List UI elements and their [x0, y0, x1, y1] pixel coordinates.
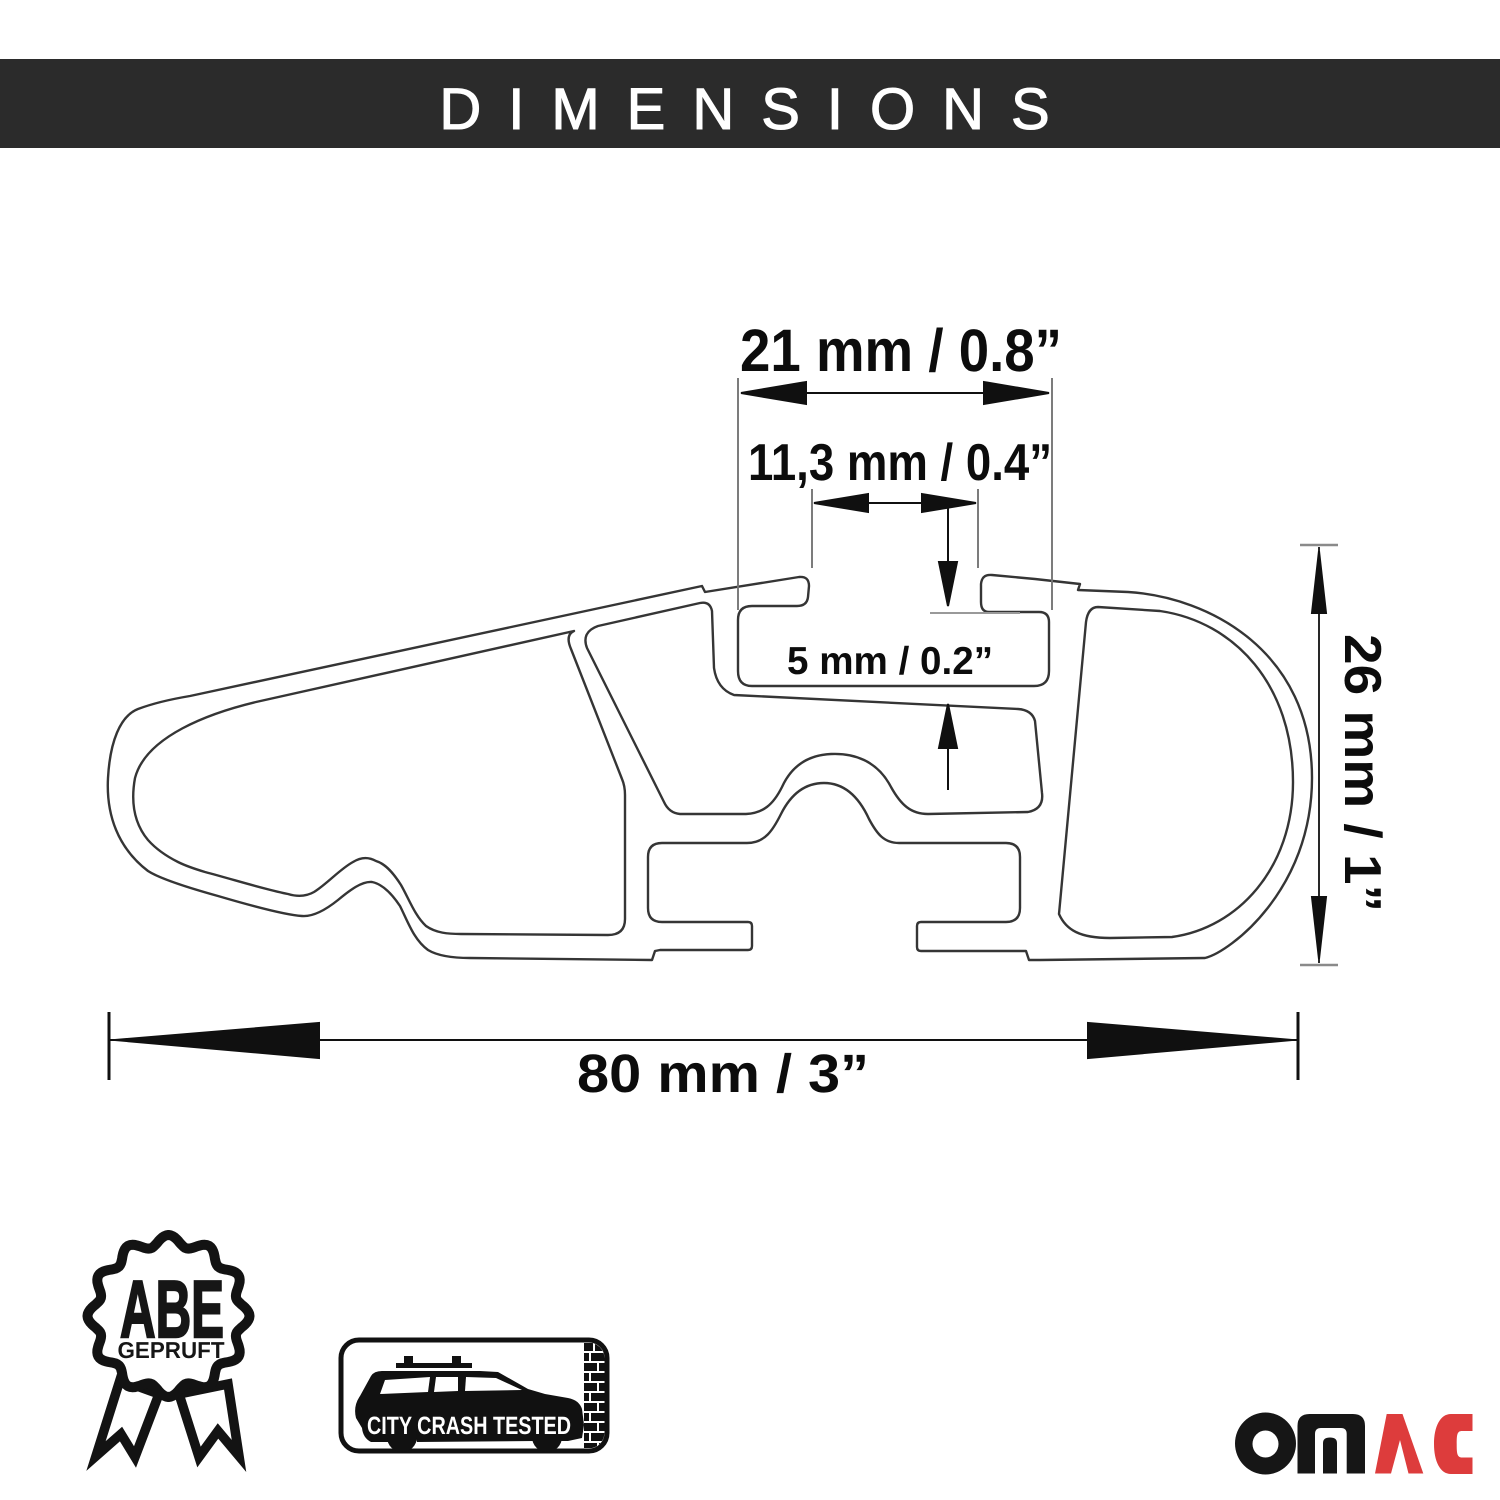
- svg-text:26 mm / 1”: 26 mm / 1”: [1333, 634, 1391, 912]
- svg-text:CITY CRASH TESTED: CITY CRASH TESTED: [367, 1412, 571, 1440]
- svg-text:21 mm / 0.8”: 21 mm / 0.8”: [740, 317, 1062, 384]
- svg-text:GEPRUFT: GEPRUFT: [118, 1337, 225, 1363]
- svg-text:11,3 mm / 0.4”: 11,3 mm / 0.4”: [748, 434, 1052, 492]
- svg-text:5 mm / 0.2”: 5 mm / 0.2”: [787, 640, 993, 683]
- svg-text:80 mm / 3”: 80 mm / 3”: [577, 1044, 869, 1104]
